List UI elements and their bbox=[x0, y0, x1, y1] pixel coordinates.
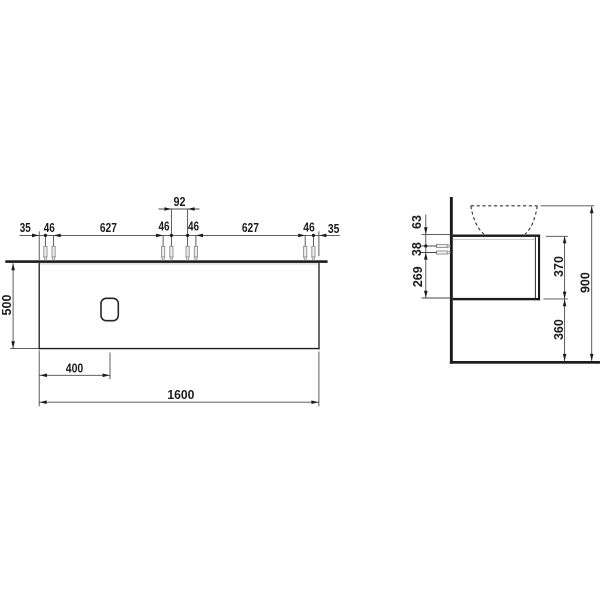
svg-text:360: 360 bbox=[552, 319, 566, 340]
svg-text:900: 900 bbox=[578, 272, 592, 293]
svg-text:46: 46 bbox=[188, 220, 199, 234]
svg-text:46: 46 bbox=[159, 220, 170, 234]
svg-text:35: 35 bbox=[328, 222, 340, 236]
svg-text:35: 35 bbox=[20, 221, 31, 235]
svg-text:46: 46 bbox=[303, 220, 315, 234]
svg-text:38: 38 bbox=[410, 242, 424, 256]
svg-text:500: 500 bbox=[0, 295, 14, 316]
svg-text:269: 269 bbox=[411, 266, 425, 287]
svg-text:627: 627 bbox=[100, 221, 117, 235]
svg-text:1600: 1600 bbox=[167, 388, 194, 402]
svg-text:63: 63 bbox=[410, 215, 424, 229]
svg-text:627: 627 bbox=[242, 221, 259, 235]
svg-text:92: 92 bbox=[174, 195, 186, 209]
svg-text:370: 370 bbox=[552, 256, 566, 277]
svg-text:400: 400 bbox=[66, 362, 84, 376]
svg-text:46: 46 bbox=[44, 221, 55, 235]
